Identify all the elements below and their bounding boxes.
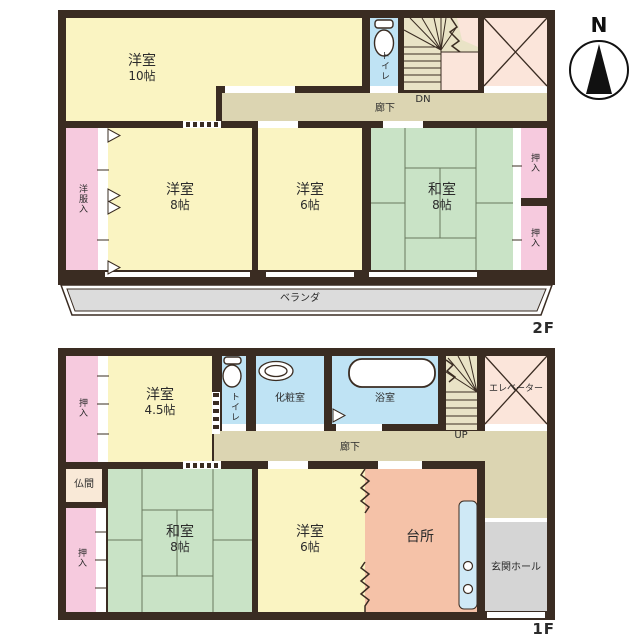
stairs-up-label: UP — [445, 429, 477, 442]
elevator-label: エレベーター — [481, 382, 551, 396]
kitchen-label: 台所 — [396, 528, 444, 548]
bathroom — [332, 356, 438, 424]
elevator-shaft-2f — [484, 18, 547, 86]
toilet-2f-label: トイレ — [370, 44, 398, 88]
toilet-1f-label: トイレ — [222, 386, 246, 428]
entrance-door-gap — [487, 612, 545, 618]
door-gap-kitchen — [378, 461, 422, 469]
window-japanese8-2f — [369, 270, 477, 279]
closet-top-1f-label: 押入 — [66, 382, 98, 434]
room-western-45-label: 洋室 4.5帖 — [128, 380, 192, 426]
room-western-8-label: 洋室 8帖 — [152, 175, 208, 221]
wardrobe-label: 洋服入 — [66, 166, 98, 232]
door-gap-japanese8-2f — [383, 121, 423, 128]
compass-north-label: N — [583, 12, 615, 38]
door-gap-western10-corridor — [225, 86, 295, 93]
closet-upper-2f-label: 押入 — [521, 139, 547, 187]
open-wall-dashes-gap-v — [212, 392, 220, 434]
closet-top-door-track — [98, 356, 108, 462]
powder-room-sill — [256, 424, 324, 431]
closet-bottom-1f-label: 押入 — [66, 532, 96, 584]
room-western-6-2f-label: 洋室 6帖 — [282, 175, 338, 221]
powder-room-label: 化粧室 — [256, 391, 324, 406]
door-gap-western6-2f — [258, 121, 298, 128]
entrance-hall-step-line — [485, 518, 547, 522]
corridor-2f-label: 廊下 — [358, 102, 412, 116]
window-western8 — [105, 270, 250, 279]
room-western-10-label: 洋室 10帖 — [92, 44, 192, 94]
floor1-tag: 1F — [505, 620, 555, 638]
room-western-6-1f-label: 洋室 6帖 — [282, 517, 338, 563]
corridor-1f-label: 廊下 — [322, 440, 378, 455]
floorplan-canvas: 洋室 10帖 トイレ DN 廊下 洋服入 洋室 8帖 洋室 6帖 和室 8帖 押… — [0, 0, 640, 640]
elevator-1f-sill — [485, 424, 547, 431]
floor2-tag: 2F — [505, 319, 555, 337]
room-japanese-8-1f-label: 和室 8帖 — [152, 517, 208, 563]
compass-icon — [570, 41, 628, 99]
altar-room-label: 仏間 — [66, 477, 102, 493]
wardrobe-door-track — [98, 128, 108, 270]
door-gap-western6-1f — [268, 461, 308, 469]
oshiire-door-track-2f — [513, 128, 521, 270]
veranda-label: ベランダ — [268, 291, 332, 306]
window-western6-2f — [266, 270, 354, 279]
bathroom-sill — [336, 424, 382, 431]
room-japanese-8-2f-label: 和室 8帖 — [414, 175, 470, 221]
open-wall-dashes-gap-1f — [183, 461, 221, 469]
entrance-hall-label: 玄関ホール — [481, 560, 551, 575]
closet-bottom-door-track — [96, 508, 106, 612]
open-wall-dashes-gap-2f — [183, 121, 221, 128]
corridor-1f-right-wing — [485, 431, 547, 518]
closet-lower-2f-label: 押入 — [521, 214, 547, 262]
powder-room — [256, 356, 324, 424]
bathroom-label: 浴室 — [356, 391, 414, 406]
elevator-2f-sill — [484, 86, 547, 93]
